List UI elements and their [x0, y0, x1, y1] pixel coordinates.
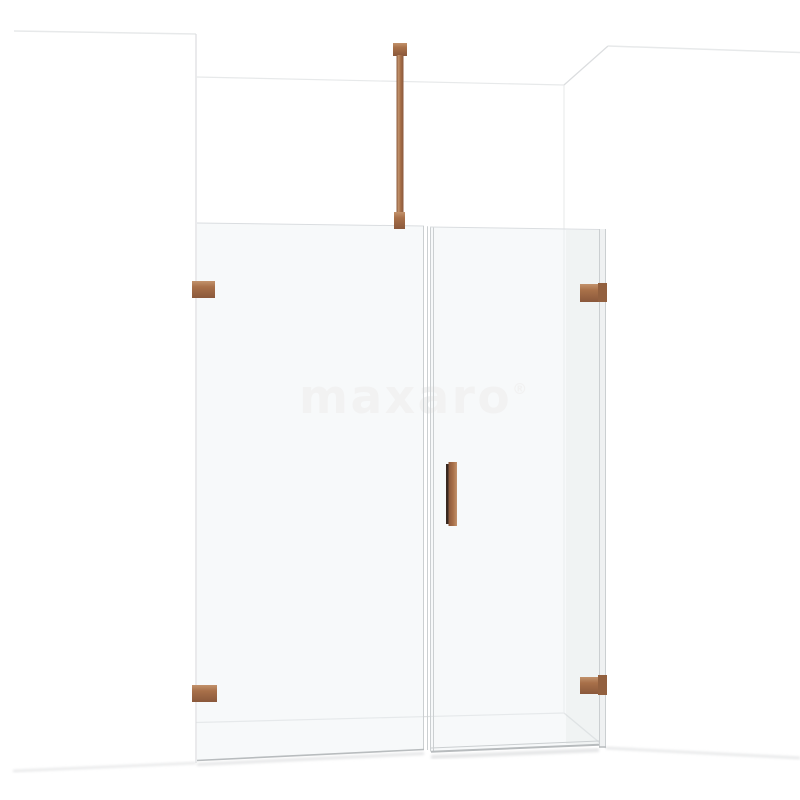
ceiling-bar-cap — [393, 43, 407, 56]
door-handle-edge — [446, 464, 449, 524]
right-wall-shade — [566, 230, 599, 744]
registered-mark: ® — [512, 380, 530, 398]
left-glass-panel — [197, 223, 424, 761]
product-photo: maxaro® — [0, 0, 800, 800]
wall-bracket-top-left — [192, 281, 215, 298]
glass-fills — [197, 223, 606, 761]
watermark-text: maxaro — [299, 370, 512, 425]
hinge-bottom-right-clamp — [598, 675, 607, 695]
watermark: maxaro® — [299, 370, 530, 425]
ceiling-support-bar — [397, 55, 404, 214]
scene-svg: maxaro® — [0, 0, 800, 800]
wall-bracket-bottom-left — [192, 685, 217, 702]
hinge-top-right — [580, 284, 600, 302]
right-glass-panel-edge — [599, 229, 606, 747]
hinge-bottom-right — [580, 677, 600, 694]
hinge-top-right-clamp — [598, 283, 607, 302]
door-handle — [449, 462, 458, 526]
ceiling-bar-glass-connector — [394, 212, 405, 229]
